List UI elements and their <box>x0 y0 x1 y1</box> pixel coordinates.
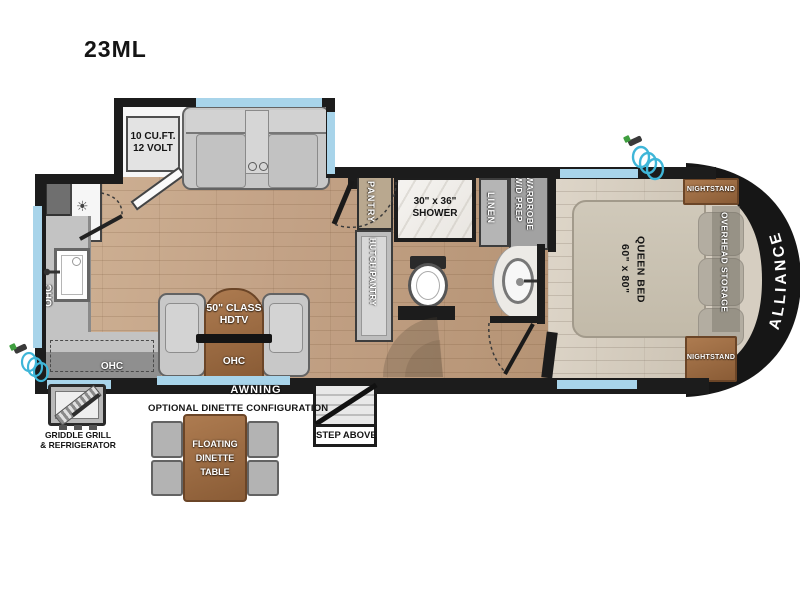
wall-slideout-left <box>114 98 123 182</box>
dinette-chair-3 <box>247 421 279 458</box>
brand-text: ALLIANCE <box>766 228 790 331</box>
wall-top-left <box>35 174 123 184</box>
dinette-chair-2 <box>151 460 183 496</box>
sofa <box>182 106 330 190</box>
recliner-left-seat <box>165 303 199 353</box>
sofa-cupholder-1 <box>248 162 257 171</box>
hutch-pantry-label: HUTCH/PANTRY <box>367 238 376 306</box>
wardrobe-label: WARDROBE W/D PREP <box>513 176 535 231</box>
kitchen-tall-cabinet <box>45 182 73 216</box>
hose-nozzle-bottom <box>13 343 27 354</box>
vanity-sink <box>502 258 534 304</box>
nightstand-bottom-label: NIGHTSTAND <box>680 354 742 362</box>
tv-label: 50" CLASS HDTV <box>196 303 272 327</box>
linen-label: LINEN <box>486 192 496 224</box>
kitchen-sink <box>54 248 90 302</box>
wall-door-jamb <box>348 178 357 189</box>
window-bedroom-top <box>560 169 638 178</box>
wall-toilet-base <box>398 306 455 320</box>
tv-screen <box>196 334 272 343</box>
sofa-cupholder-2 <box>259 162 268 171</box>
recliner-right-seat <box>269 303 303 353</box>
nightstand-top-label: NIGHTSTAND <box>681 186 741 194</box>
toilet-bowl <box>408 263 448 308</box>
step-above-label: STEP ABOVE <box>316 431 374 442</box>
shower-label: 30" x 36" SHOWER <box>394 196 476 219</box>
window-bedroom-bottom <box>557 380 637 389</box>
dinette-chair-1 <box>151 421 183 458</box>
awning-label: AWNING <box>206 384 306 396</box>
floorplan-page: 23ML ALLIANCE 10 CU.FT. 12 VOLT ☀ OHC <box>0 0 800 600</box>
window-slideout-top <box>196 98 322 107</box>
ohc-bottom-label: OHC <box>90 361 134 372</box>
dinette-chair-4 <box>247 460 279 496</box>
wall-vanity-right <box>537 244 545 324</box>
sofa-seat-right <box>268 134 318 188</box>
toilet-seat <box>416 271 440 300</box>
page-title: 23ML <box>84 36 147 62</box>
window-left <box>33 206 42 348</box>
dinette-table-label: FLOATING DINETTE TABLE <box>183 438 247 480</box>
griddle-grill-label: GRIDDLE GRILL & REFRIGERATOR <box>18 431 138 451</box>
overhead-storage-label: OVERHEAD STORAGE <box>719 212 729 312</box>
wall-vanity-stub <box>490 316 540 323</box>
refrigerator-label: 10 CU.FT. 12 VOLT <box>124 131 182 154</box>
ohc-tv-label: OHC <box>212 356 256 367</box>
wall-bedroom-divider <box>548 167 556 252</box>
burner-icon: ☀ <box>76 198 89 215</box>
hose-nozzle-top <box>627 135 642 146</box>
hose-nozzle-top-tip <box>623 135 631 143</box>
window-slideout-right <box>327 112 335 174</box>
pantry-label: PANTRY <box>366 181 376 223</box>
queen-bed-label: QUEEN BED 60" x 80" <box>616 212 648 326</box>
wall-top-middle <box>330 167 556 178</box>
step-above-box: STEP ABOVE <box>313 383 377 447</box>
hose-nozzle-bottom-tip <box>9 343 17 351</box>
svg-text:ALLIANCE: ALLIANCE <box>766 228 790 331</box>
sink-dot <box>516 278 524 286</box>
griddle-grill-box <box>48 384 106 426</box>
sofa-seat-left <box>196 134 246 188</box>
sink-drain <box>72 257 81 266</box>
